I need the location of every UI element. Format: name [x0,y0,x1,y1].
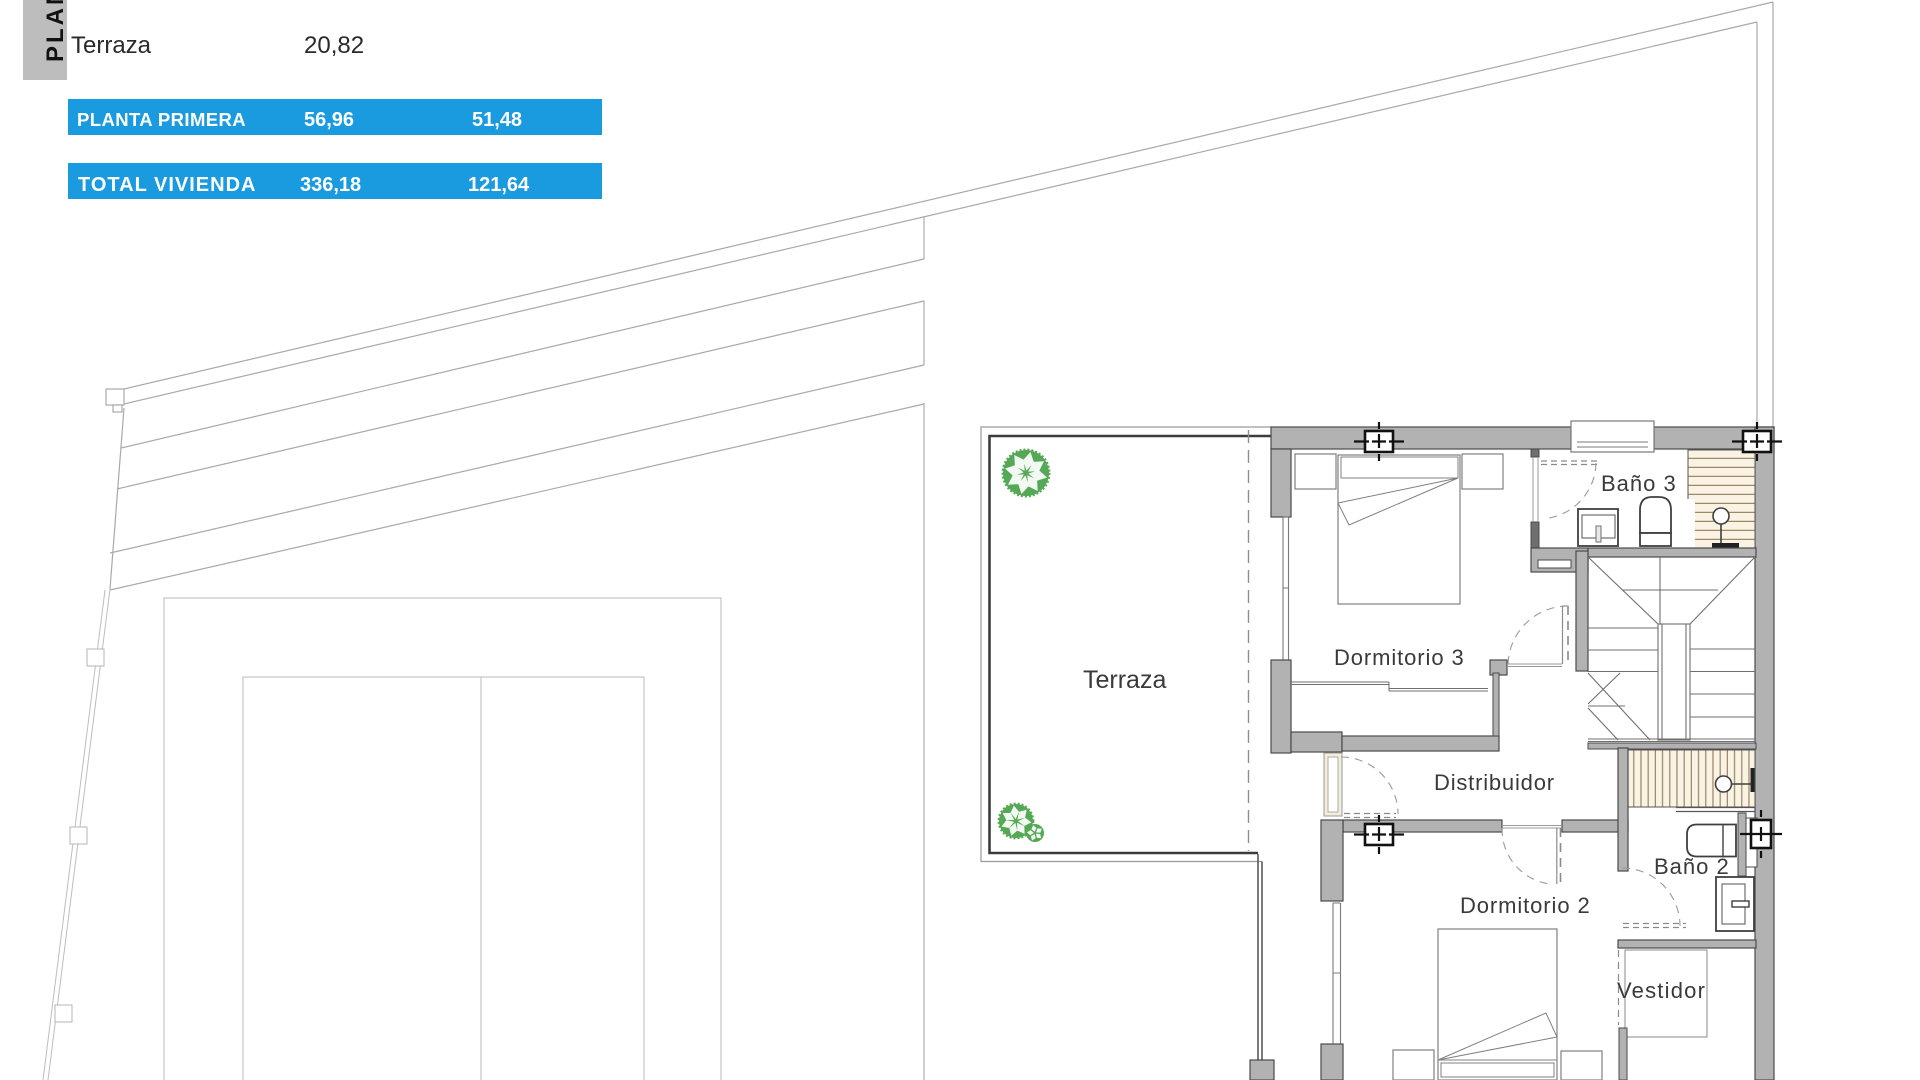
svg-text:Distribuidor: Distribuidor [1434,770,1555,795]
svg-text:121,64: 121,64 [468,174,530,196]
svg-text:56,96: 56,96 [304,109,354,131]
svg-text:336,18: 336,18 [300,174,361,196]
svg-text:Terraza: Terraza [1083,666,1166,694]
svg-text:Baño 3: Baño 3 [1601,471,1677,496]
svg-text:TOTAL VIVIENDA: TOTAL VIVIENDA [78,174,256,196]
svg-text:Dormitorio 2: Dormitorio 2 [1460,893,1591,918]
svg-text:51,48: 51,48 [472,109,522,131]
svg-text:Dormitorio 3: Dormitorio 3 [1334,645,1465,670]
svg-text:PLANTA PRIMERA: PLANTA PRIMERA [42,0,69,62]
svg-text:PLANTA PRIMERA: PLANTA PRIMERA [77,109,246,130]
svg-text:Baño 2: Baño 2 [1654,854,1730,879]
svg-text:Terraza: Terraza [71,32,152,59]
svg-text:20,82: 20,82 [304,32,364,59]
svg-text:Vestidor: Vestidor [1617,978,1706,1003]
